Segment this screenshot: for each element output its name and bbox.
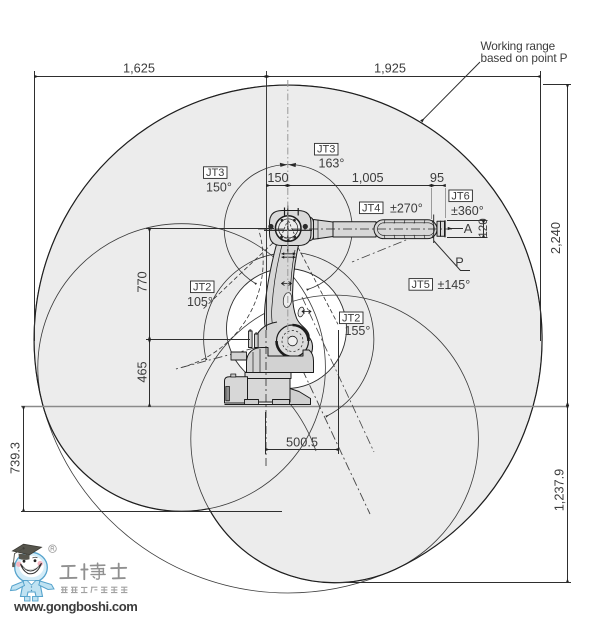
svg-text:based on point P: based on point P: [481, 51, 568, 65]
svg-text:105°: 105°: [187, 295, 213, 309]
svg-text:1,925: 1,925: [374, 61, 406, 76]
svg-text:465: 465: [134, 361, 149, 382]
svg-text:95: 95: [430, 170, 444, 185]
svg-text:2,240: 2,240: [548, 222, 563, 254]
svg-text:JT3: JT3: [317, 144, 335, 156]
svg-text:120: 120: [478, 218, 490, 237]
svg-text:150°: 150°: [206, 181, 232, 195]
svg-text:1,625: 1,625: [123, 61, 155, 76]
svg-text:1,237.9: 1,237.9: [551, 469, 566, 512]
svg-text:P: P: [455, 255, 464, 270]
svg-text:A: A: [464, 221, 473, 236]
svg-text:1,005: 1,005: [352, 170, 384, 185]
svg-text:www.gongboshi.com: www.gongboshi.com: [13, 599, 137, 614]
svg-text:±270°: ±270°: [390, 202, 423, 216]
svg-text:150: 150: [267, 170, 288, 185]
svg-text:739.3: 739.3: [7, 442, 22, 474]
svg-text:JT2: JT2: [342, 312, 360, 324]
svg-text:JT3: JT3: [206, 167, 224, 179]
svg-text:JT5: JT5: [412, 279, 430, 291]
svg-text:770: 770: [134, 271, 149, 292]
svg-text:±360°: ±360°: [451, 204, 484, 218]
svg-text:500.5: 500.5: [286, 435, 318, 450]
svg-text:163°: 163°: [319, 157, 345, 171]
svg-text:155°: 155°: [345, 324, 371, 338]
svg-text:JT6: JT6: [451, 190, 469, 202]
svg-text:JT4: JT4: [362, 202, 380, 214]
svg-text:±145°: ±145°: [438, 278, 471, 292]
svg-text:JT2: JT2: [193, 281, 211, 293]
